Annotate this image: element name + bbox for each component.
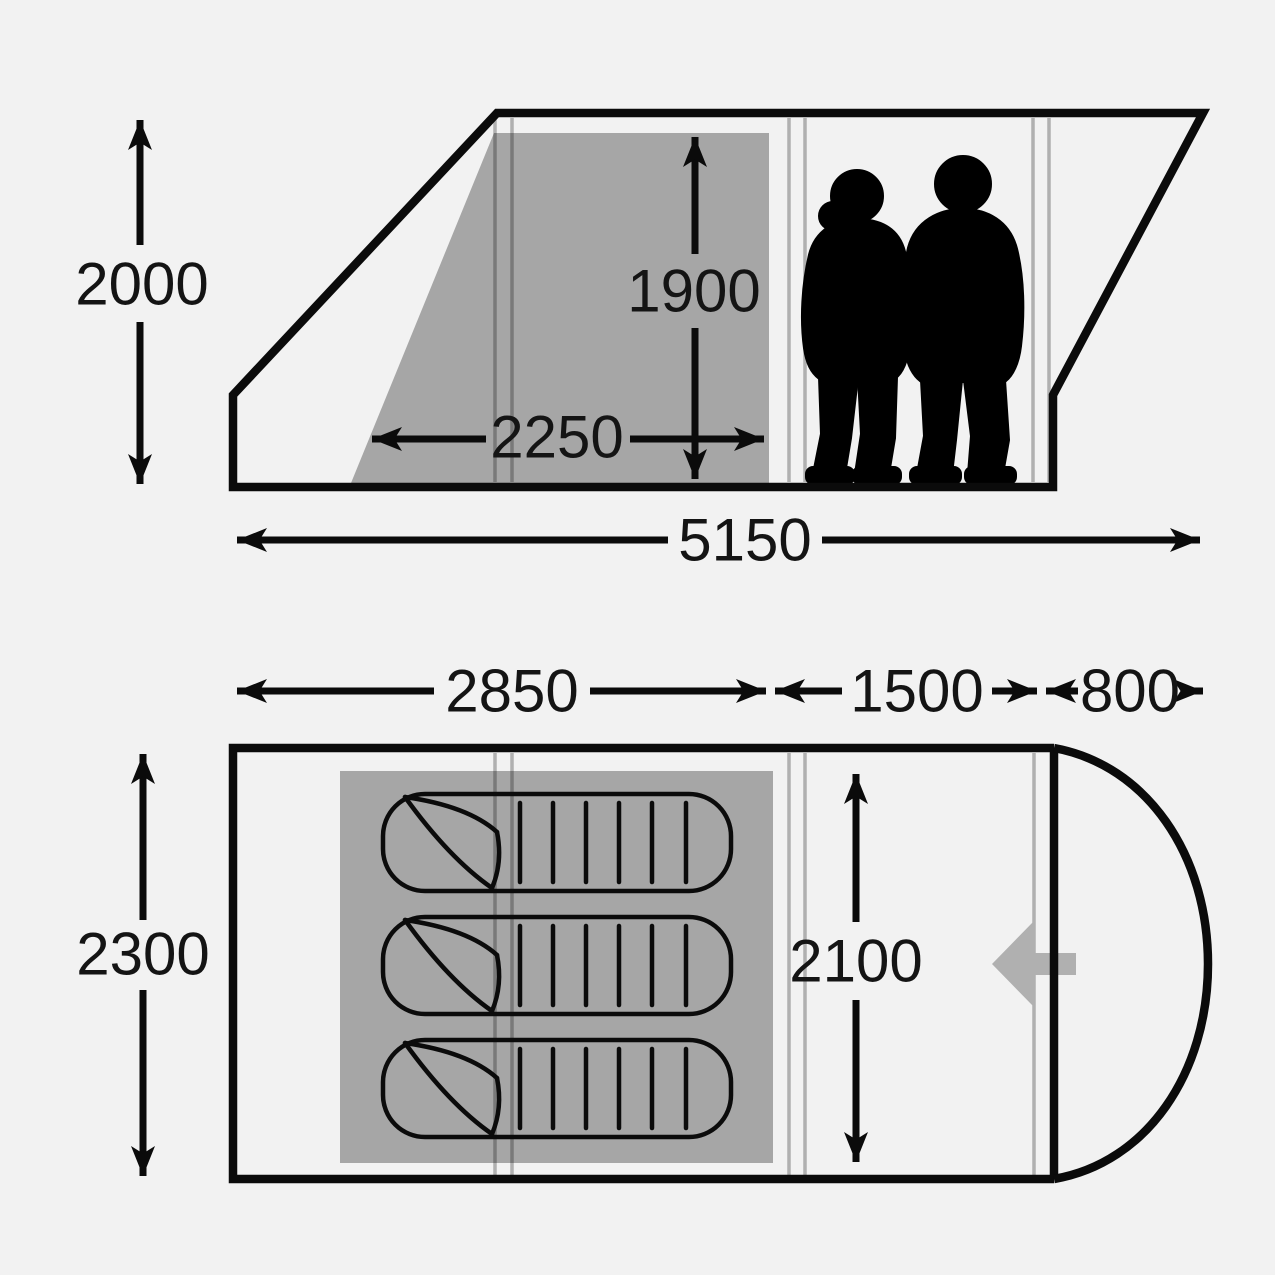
floor-plan-view: 2850 1500 800 2300 2100	[76, 658, 1208, 1180]
man-head	[937, 158, 989, 210]
diagram-svg: 2000 1900 2250 5150	[0, 0, 1275, 1275]
man-right-leg	[966, 380, 1007, 474]
dim-overall-width: 2300	[76, 754, 209, 1176]
woman-foot	[808, 469, 852, 482]
dim-bedroom-length-label: 2850	[445, 658, 578, 725]
dim-headroom-label: 1900	[627, 258, 760, 325]
plan-bedroom-shade	[340, 771, 773, 1163]
dim-living-length-label: 1500	[850, 658, 983, 725]
dim-porch-length: 800	[1046, 658, 1203, 725]
man-foot	[967, 469, 1014, 482]
dim-overall-height: 2000	[75, 120, 208, 484]
dim-porch-length-label: 800	[1080, 658, 1180, 725]
woman-silhouette	[804, 172, 909, 482]
plan-porch-curve	[1054, 748, 1208, 1179]
dim-overall-length-label: 5150	[678, 507, 811, 574]
dim-inner-width-label: 2100	[789, 928, 922, 995]
dim-inner-width: 2100	[789, 774, 922, 1162]
man-left-leg	[919, 380, 960, 474]
woman-foot	[855, 469, 899, 482]
man-torso	[904, 211, 1021, 380]
side-elevation-view: 2000 1900 2250 5150	[75, 113, 1203, 574]
dim-overall-length: 5150	[237, 507, 1200, 574]
man-foot	[912, 469, 959, 482]
dim-bedroom-depth-label: 2250	[490, 404, 623, 471]
tent-dimension-diagram: 2000 1900 2250 5150	[0, 0, 1275, 1275]
woman-right-leg	[857, 377, 895, 474]
dim-bedroom-length: 2850	[237, 658, 766, 725]
dim-overall-height-label: 2000	[75, 251, 208, 318]
dim-living-length: 1500	[775, 658, 1037, 725]
man-silhouette	[904, 158, 1021, 482]
woman-left-leg	[815, 377, 856, 474]
woman-torso	[804, 221, 909, 377]
dim-overall-width-label: 2300	[76, 921, 209, 988]
